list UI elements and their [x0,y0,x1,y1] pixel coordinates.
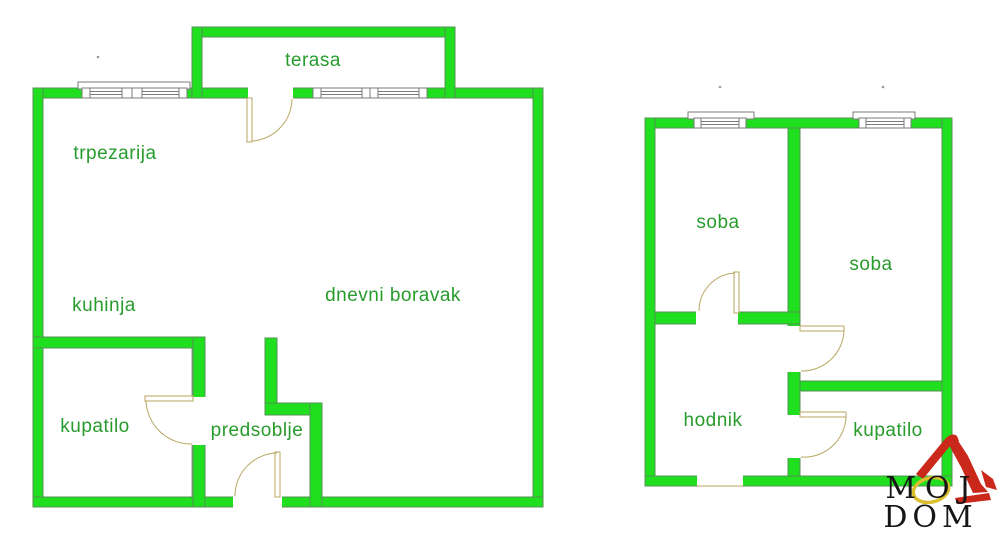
window-jamb [313,88,321,98]
window-symbol-top-left [78,82,190,98]
window-mullion [362,88,370,98]
wall-hallway-east [310,403,322,507]
room-label-terasa: terasa [285,50,341,72]
door-leaf [734,272,739,313]
room-label-hodnik: hodnik [684,410,743,432]
door-leaf [247,98,252,142]
door-symbol-kupatilo2 [800,412,846,457]
door-opening-soba1 [696,311,738,325]
door-symbol-terrace [247,98,292,142]
marker-dot [97,56,100,59]
wall-kitchen-divider [33,337,205,348]
door-swing-arc [801,417,846,457]
door-leaf [275,452,280,497]
door-leaf [800,326,844,331]
window-symbol-soba1 [688,112,754,128]
wall-outer-left [33,88,43,507]
wall-terrace-left [192,27,202,98]
door-opening-terrace [248,86,293,99]
door-leaf [800,412,846,417]
wall-outer-bottom [33,497,543,507]
window-jamb [82,88,90,98]
room-label-predsoblje: predsoblje [211,420,304,442]
floorplan-canvas: terasa trpezarija kuhinja dnevni boravak… [0,0,1000,542]
window-mullion [122,88,132,98]
room-label-soba2: soba [849,254,892,276]
door-symbol-soba2 [800,326,844,371]
door-swing-arc [801,331,844,371]
window-symbol-soba2 [853,112,915,128]
window-frame [694,118,746,128]
door-swing-arc [146,401,192,444]
window-frame [859,118,911,128]
door-swing-arc [252,99,292,141]
door-symbol-bathroom [145,396,193,444]
window-jamb [739,118,746,128]
room-label-dnevni-boravak: dnevni boravak [325,285,461,307]
room-label-kuhinja: kuhinja [72,295,136,317]
door-opening-kupatilo2 [787,415,802,458]
window-jamb [179,88,187,98]
room-label-kupatilo: kupatilo [60,416,130,438]
wall-terrace-top [192,27,455,37]
wall-terrace-right [445,27,455,98]
door-swing-arc [235,453,277,496]
marker-dot [882,86,885,89]
door-symbol-soba1 [699,272,739,313]
door-leaf [145,396,193,401]
window-symbol-terrace [313,88,427,98]
door-opening-entry [233,496,282,508]
room-outline-hodnik [655,324,788,476]
window-mullion [132,88,142,98]
door-opening-apartment-entry [697,475,743,487]
window-jamb [419,88,427,98]
wall-outer-right [533,88,543,507]
door-symbol-entry [235,452,280,497]
door-opening-bathroom [191,397,207,445]
window-jamb [904,118,911,128]
room-label-trpezarija: trpezarija [73,143,156,165]
door-opening-soba2 [787,326,802,372]
wall-outer-left [645,118,655,486]
wall-soba2-bathroom-divider [800,381,942,391]
room-label-soba1: soba [696,212,739,234]
window-mullion [370,88,378,98]
mojdom-logo: MOJ DOM [862,424,1000,542]
window-jamb [694,118,701,128]
door-swing-arc [699,273,735,311]
marker-dot [719,86,722,89]
window-jamb [859,118,866,128]
logo-line-2: DOM [862,503,994,533]
